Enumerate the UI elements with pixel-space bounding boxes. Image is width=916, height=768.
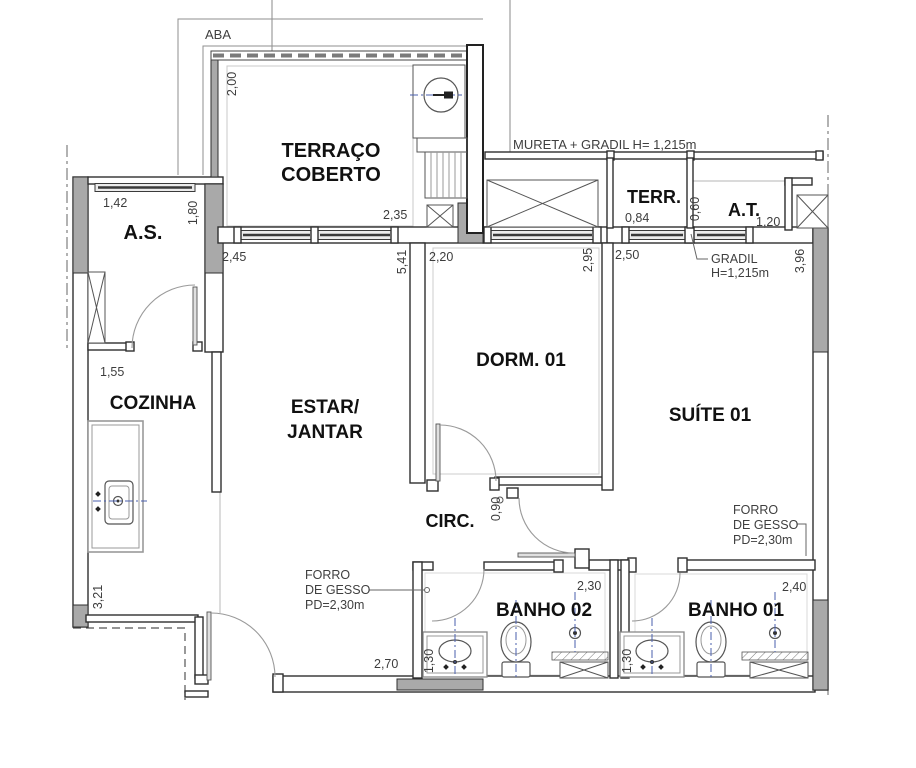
annotation-forro-left-line3: PD=2,30m: [305, 598, 364, 612]
dim-banho01-width: 2,40: [782, 580, 806, 594]
wall-xbox-terr: [607, 158, 613, 228]
annotation-forro-right-line1: FORRO: [733, 503, 778, 517]
door-entry: [207, 612, 275, 680]
shaft-xbox-left: [88, 272, 105, 343]
room-label-terr: TERR.: [627, 187, 681, 207]
room-label-estar-line2: JANTAR: [287, 422, 363, 443]
wall-suite-bottom-b: [682, 560, 815, 570]
wall-terraco-left: [211, 53, 218, 177]
window-at: [694, 231, 748, 240]
wall-dorm-bottom: [495, 477, 603, 485]
dim-estar-bottom: 2,70: [374, 657, 398, 671]
wall-cozinha-bottom: [86, 615, 198, 622]
annotation-mureta: MURETA + GRADIL H= 1,215m: [513, 137, 697, 152]
wall-bottom: [273, 676, 815, 692]
dim-terraco-height: 2,00: [225, 72, 239, 96]
stairs-icon: [425, 152, 467, 198]
grill-counter-icon: [410, 65, 465, 138]
wall-entry: [195, 617, 203, 678]
wall-estar-dorm: [410, 243, 425, 483]
shaft-xbox-topright: [797, 195, 828, 228]
room-label-terraco-line2: COBERTO: [281, 164, 381, 186]
room-label-as: A.S.: [124, 222, 163, 244]
window-dorm: [490, 231, 595, 240]
annotation-forro-right-line3: PD=2,30m: [733, 533, 792, 547]
dim-banho02-sink: 1,30: [422, 649, 436, 673]
annotation-aba: ABA: [205, 27, 231, 42]
planter-xbox-large: [487, 180, 598, 227]
dim-estar-width: 2,45: [222, 250, 246, 264]
dim-cozinha-width: 1,55: [100, 365, 124, 379]
room-label-dorm: DORM. 01: [476, 350, 566, 371]
room-label-banho02: BANHO 02: [496, 600, 592, 621]
stair-landing: [417, 138, 467, 152]
wall-circ-suite: [602, 243, 613, 490]
room-label-cozinha: COZINHA: [110, 393, 197, 414]
door-suite: [497, 497, 575, 557]
door-banho02: [432, 569, 484, 621]
door-banho01: [632, 573, 680, 621]
room-label-estar-line1: ESTAR/: [291, 397, 360, 418]
wall-banho02-left: [413, 562, 422, 678]
dim-terr-at: 0,60: [688, 197, 702, 221]
floor-plan-canvas: TERRAÇO COBERTO A.S. COZINHA ESTAR/ JANT…: [0, 0, 916, 768]
annotation-gradil-line2: H=1,215m: [711, 266, 769, 280]
room-label-terraco-line1: TERRAÇO: [282, 140, 381, 162]
dim-banho02-width: 2,30: [577, 579, 601, 593]
annotation-gradil-line1: GRADIL: [711, 252, 758, 266]
dim-cozinha-height: 3,21: [91, 585, 105, 609]
dim-terraco-width: 2,35: [383, 208, 407, 222]
room-label-banho01: BANHO 01: [688, 600, 785, 621]
dim-dorm-height: 2,95: [581, 248, 595, 272]
door-dorm: [436, 424, 496, 481]
wall-banhos-a: [610, 560, 618, 678]
floor-plan-drawing: TERRAÇO COBERTO A.S. COZINHA ESTAR/ JANT…: [0, 0, 916, 768]
wall-core: [467, 45, 483, 233]
wall-mureta: [485, 152, 823, 159]
dim-suite-height: 3,96: [793, 249, 807, 273]
wall-banho02-top: [484, 562, 560, 570]
annotation-forro-right-line2: DE GESSO: [733, 518, 799, 532]
window-terr: [628, 231, 686, 240]
dim-as-height: 1,80: [186, 201, 200, 225]
kitchen-counter-icon: [88, 421, 147, 552]
shaft-xbox-core: [427, 205, 453, 227]
dim-banho01-sink: 1,30: [620, 649, 634, 673]
window-estar-1: [240, 231, 313, 240]
room-label-suite: SUÍTE 01: [669, 404, 752, 426]
room-label-circ: CIRC.: [426, 511, 475, 531]
annotation-forro-left-line1: FORRO: [305, 568, 350, 582]
dim-dorm-width: 2,20: [429, 250, 453, 264]
annotation-forro-left-line2: DE GESSO: [305, 583, 371, 597]
window-estar-2: [317, 231, 393, 240]
door-as: [132, 285, 197, 348]
dim-terr-width: 0,84: [625, 211, 649, 225]
dim-suite-width: 2,50: [615, 248, 639, 262]
dim-estar-height: 5,41: [395, 250, 409, 274]
wall-cozinha-estar: [212, 352, 221, 492]
wall-at-right-b: [785, 178, 792, 230]
dim-as-width: 1,42: [103, 196, 127, 210]
dim-circ-width: 0,90: [489, 497, 503, 521]
dim-at-width: 1,20: [756, 215, 780, 229]
